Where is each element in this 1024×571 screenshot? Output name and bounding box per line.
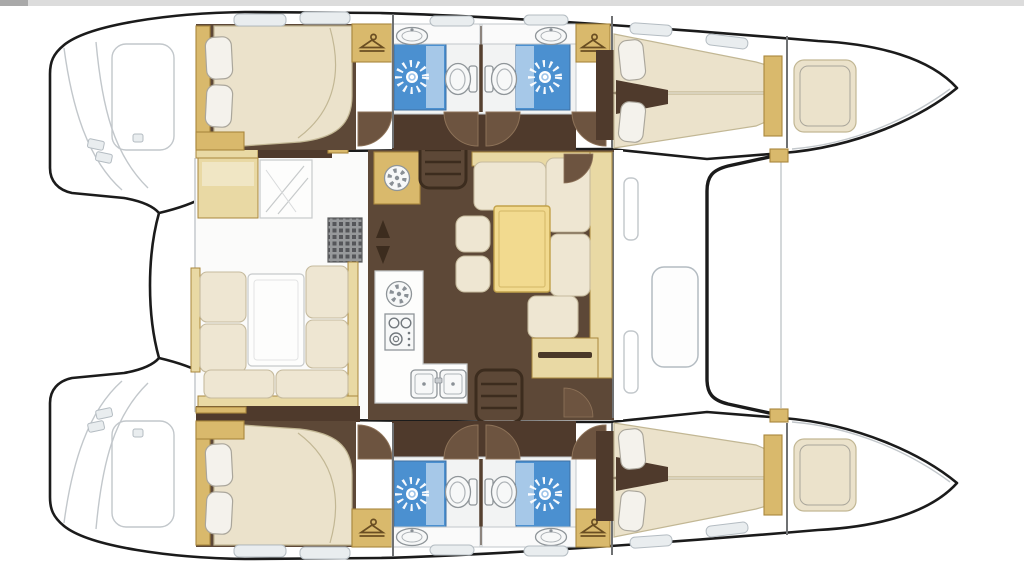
washbasin-icon xyxy=(536,28,567,45)
deck-grate xyxy=(328,218,362,262)
top-border-corner xyxy=(0,0,28,6)
settee-cushion xyxy=(306,320,348,368)
cockpit-chaise xyxy=(260,160,312,218)
cockpit-seat-cushion xyxy=(202,162,254,186)
pillow xyxy=(205,84,233,127)
pillow xyxy=(205,36,233,79)
settee-backrest-left xyxy=(191,268,200,372)
settee-cushion xyxy=(276,370,348,398)
deck-hatch xyxy=(524,15,568,25)
foot-shelf xyxy=(764,56,782,136)
pillow xyxy=(205,443,233,486)
pillow xyxy=(618,490,647,532)
foot-shelf xyxy=(196,132,244,150)
settee-cushion xyxy=(204,370,274,398)
toilet-icon xyxy=(485,64,517,95)
deck-hatch xyxy=(524,546,568,556)
wardrobe xyxy=(352,24,392,62)
settee-backrest-right xyxy=(348,262,358,406)
beam-mount xyxy=(770,409,788,422)
transom-shower-icon xyxy=(133,134,143,142)
toilet-icon xyxy=(446,477,478,508)
dinette-table xyxy=(494,206,550,292)
aft-side-locker xyxy=(196,407,246,413)
port-heads-compartments xyxy=(358,14,612,150)
double-bed xyxy=(214,423,352,545)
pillow xyxy=(618,39,647,81)
trampoline-edge xyxy=(707,154,783,416)
forepeak-berth xyxy=(794,60,856,132)
starboard-heads-compartments xyxy=(358,421,612,557)
foredeck-locker xyxy=(652,267,698,367)
floorplan-canvas xyxy=(0,0,1024,571)
washbasin-icon xyxy=(397,28,428,45)
pillow xyxy=(618,101,647,143)
ottoman xyxy=(456,216,490,252)
washbasin-icon xyxy=(536,529,567,546)
settee-cushion xyxy=(306,266,348,318)
pillow xyxy=(618,428,647,470)
stove-icon xyxy=(385,314,414,350)
double-bed xyxy=(214,26,352,148)
vent-fan-icon xyxy=(385,166,410,191)
nav-seat xyxy=(528,296,578,338)
deck-hatch xyxy=(234,14,286,26)
settee-cushion xyxy=(200,324,246,372)
toilet-icon xyxy=(485,477,517,508)
top-border-strip xyxy=(0,0,1024,6)
foot-shelf xyxy=(196,421,244,439)
aft-crossbeam-line xyxy=(150,213,159,358)
deck-hatch xyxy=(430,16,474,26)
cabin-entry-floor xyxy=(596,50,616,140)
transom-shower-icon xyxy=(133,429,143,437)
pillow xyxy=(205,491,233,534)
dinette-cushion xyxy=(474,162,546,210)
forepeak-berth xyxy=(794,439,856,511)
chart-desk-slot xyxy=(538,352,592,358)
toilet-icon xyxy=(446,64,478,95)
beam-mount xyxy=(770,149,788,162)
deck-hatch xyxy=(630,23,673,37)
salon-front-band xyxy=(614,150,623,420)
foredeck-hatch xyxy=(624,331,638,393)
deck-hatch xyxy=(234,545,286,557)
dinette-cushion xyxy=(550,234,590,296)
ottoman xyxy=(456,256,490,292)
foredeck-hatch xyxy=(624,178,638,240)
settee-cushion xyxy=(200,272,246,322)
deck-hatch xyxy=(300,547,350,559)
deck-hatch xyxy=(430,545,474,555)
cockpit-table xyxy=(248,274,304,366)
wardrobe xyxy=(352,509,392,547)
deck-hatch xyxy=(630,535,673,549)
foot-shelf xyxy=(764,435,782,515)
deck-hatch xyxy=(300,12,350,24)
galley-fan-icon xyxy=(387,282,412,307)
cabin-entry-floor xyxy=(596,431,616,521)
washbasin-icon xyxy=(397,529,428,546)
